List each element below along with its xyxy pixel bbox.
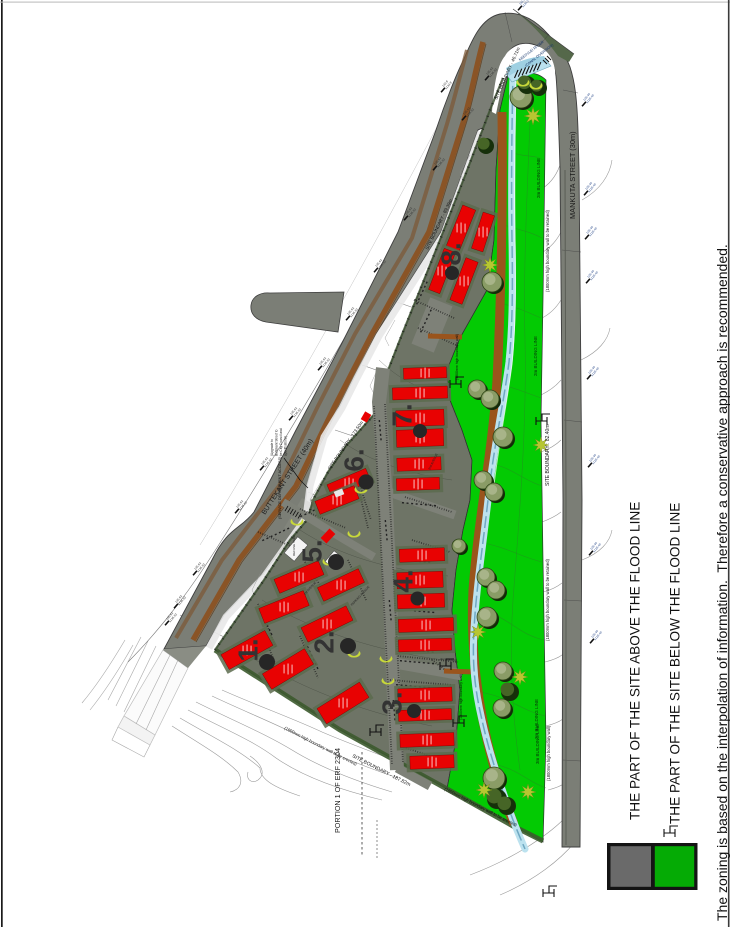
svg-text:REFUSE YARD: REFUSE YARD: [292, 534, 296, 556]
svg-text:(SERVICE DEPARTMENT ACCESS): (SERVICE DEPARTMENT ACCESS): [278, 456, 282, 519]
svg-text:THE PART OF THE SITE ABOVE THE: THE PART OF THE SITE ABOVE THE FLOOD LIN…: [628, 502, 643, 820]
svg-text:(1800mm high boundary wall to: (1800mm high boundary wall to be retaine…: [545, 558, 550, 641]
svg-text:3m BUILDING LINE: 3m BUILDING LINE: [535, 724, 540, 764]
svg-text:5.: 5.: [296, 539, 327, 562]
svg-text:4.: 4.: [387, 569, 418, 592]
svg-text:(1800mm high boundary wall): (1800mm high boundary wall): [455, 334, 459, 380]
svg-text:MANKUTA STREET (30m): MANKUTA STREET (30m): [568, 131, 577, 219]
svg-text:(1800mm high boundary wall): (1800mm high boundary wall): [459, 674, 463, 720]
svg-text:7.: 7.: [386, 403, 417, 426]
svg-text:specifications): specifications): [284, 436, 288, 456]
svg-text:2m BUILDING LINE: 2m BUILDING LINE: [536, 158, 541, 198]
svg-text:PORTION 1 OF ERF 2304: PORTION 1 OF ERF 2304: [333, 748, 342, 833]
svg-text:THE PART OF THE SITE BELOW THE: THE PART OF THE SITE BELOW THE FLOOD LIN…: [668, 503, 683, 824]
svg-text:(Upgrade to: (Upgrade to: [270, 439, 274, 456]
svg-text:(1800mm high boundary wall to: (1800mm high boundary wall to be retaine…: [545, 209, 550, 292]
svg-text:SITE BOUNDARY : 82.40m: SITE BOUNDARY : 82.40m: [545, 424, 551, 486]
svg-text:8.: 8.: [435, 242, 466, 265]
svg-text:2m BUILDING LINE: 2m BUILDING LINE: [533, 336, 538, 376]
svg-text:The zoning is based on the int: The zoning is based on the interpolation…: [714, 244, 730, 921]
svg-text:2.: 2.: [308, 630, 339, 653]
svg-text:3.: 3.: [376, 691, 407, 714]
svg-text:1.: 1.: [232, 638, 263, 661]
svg-text:Buttekant Street to: Buttekant Street to: [275, 429, 279, 456]
svg-text:be City Council and: be City Council and: [279, 428, 283, 456]
svg-text:(1800mm high boundary wall): (1800mm high boundary wall): [546, 725, 551, 781]
